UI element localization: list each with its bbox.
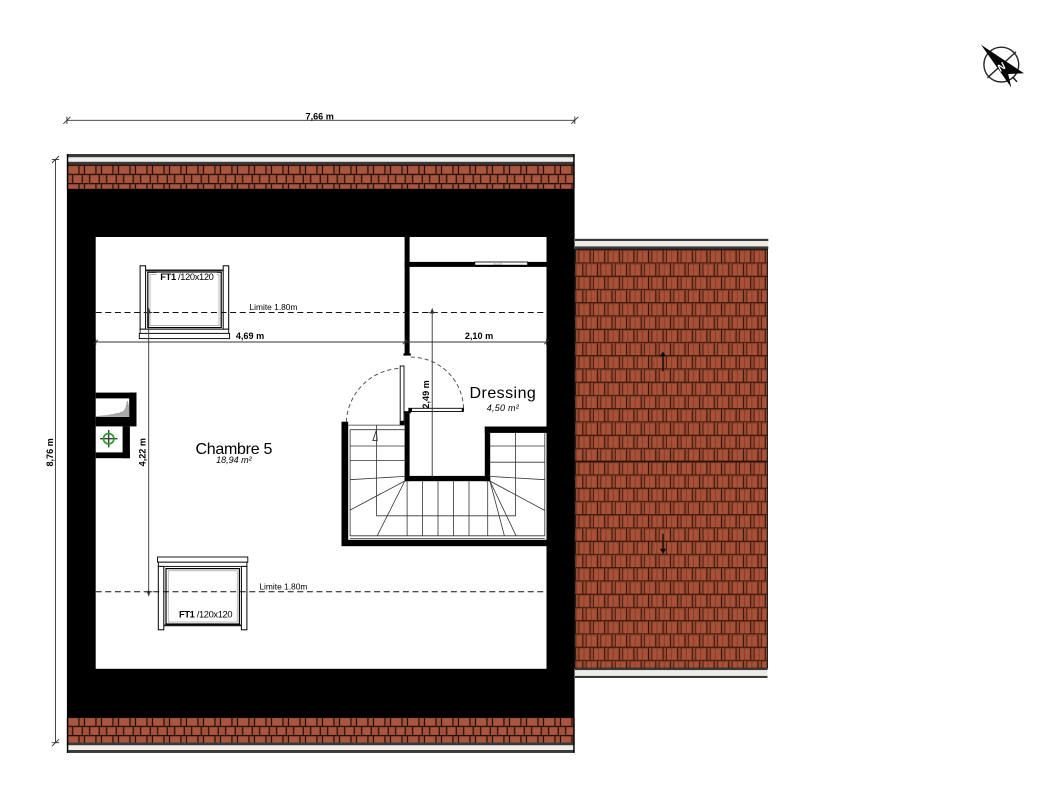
svg-text:2,49 m: 2,49 m (421, 380, 431, 408)
svg-text:FT1 /120x120: FT1 /120x120 (160, 272, 213, 282)
svg-text:FT1 /120x120: FT1 /120x120 (179, 609, 232, 619)
svg-text:Dressing: Dressing (470, 385, 537, 402)
svg-text:35: 35 (650, 361, 655, 366)
svg-text:4,69 m: 4,69 m (236, 331, 264, 341)
svg-text:35: 35 (650, 543, 655, 548)
svg-text:7,66 m: 7,66 m (306, 111, 334, 121)
svg-text:4,50 m²: 4,50 m² (487, 403, 520, 413)
svg-text:placard: placard (493, 262, 503, 266)
svg-text:Limite 1.80m: Limite 1.80m (250, 302, 298, 312)
svg-text:8,76 m: 8,76 m (45, 438, 55, 466)
svg-text:Limite 1.80m: Limite 1.80m (259, 582, 307, 592)
svg-text:2,10 m: 2,10 m (465, 331, 493, 341)
svg-text:4,22 m: 4,22 m (137, 438, 147, 466)
svg-text:18,94 m²: 18,94 m² (216, 455, 253, 465)
